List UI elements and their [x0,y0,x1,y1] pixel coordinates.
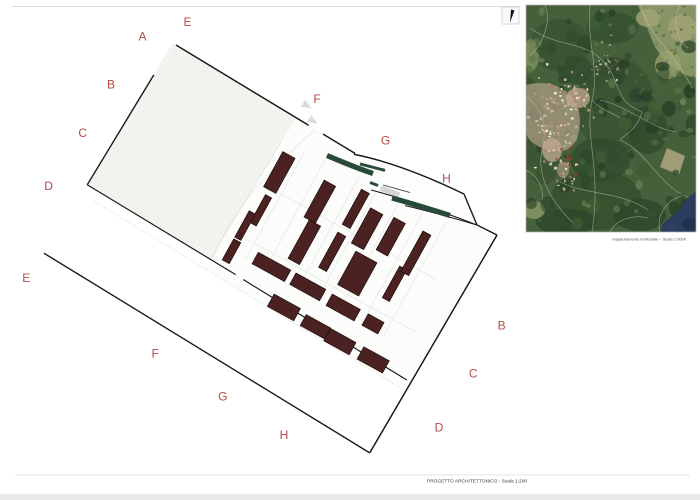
svg-text:H: H [442,171,451,185]
svg-text:B: B [107,78,115,92]
svg-text:Inquadramento territoriale – S: Inquadramento territoriale – Scala 1:500… [612,237,686,242]
svg-text:H: H [280,428,289,442]
svg-text:F: F [152,346,159,360]
svg-text:C: C [469,367,478,381]
svg-text:C: C [78,126,87,140]
svg-text:E: E [22,271,30,285]
svg-text:PROGETTO ARCHITETTONICO - Scal: PROGETTO ARCHITETTONICO - Scala 1:200 [427,479,527,485]
svg-text:D: D [44,179,53,193]
svg-text:F: F [313,92,320,106]
svg-text:G: G [381,134,390,148]
svg-text:G: G [218,390,227,404]
svg-text:E: E [183,15,191,29]
svg-text:A: A [138,29,146,43]
svg-text:B: B [498,319,506,333]
svg-text:D: D [435,420,444,434]
